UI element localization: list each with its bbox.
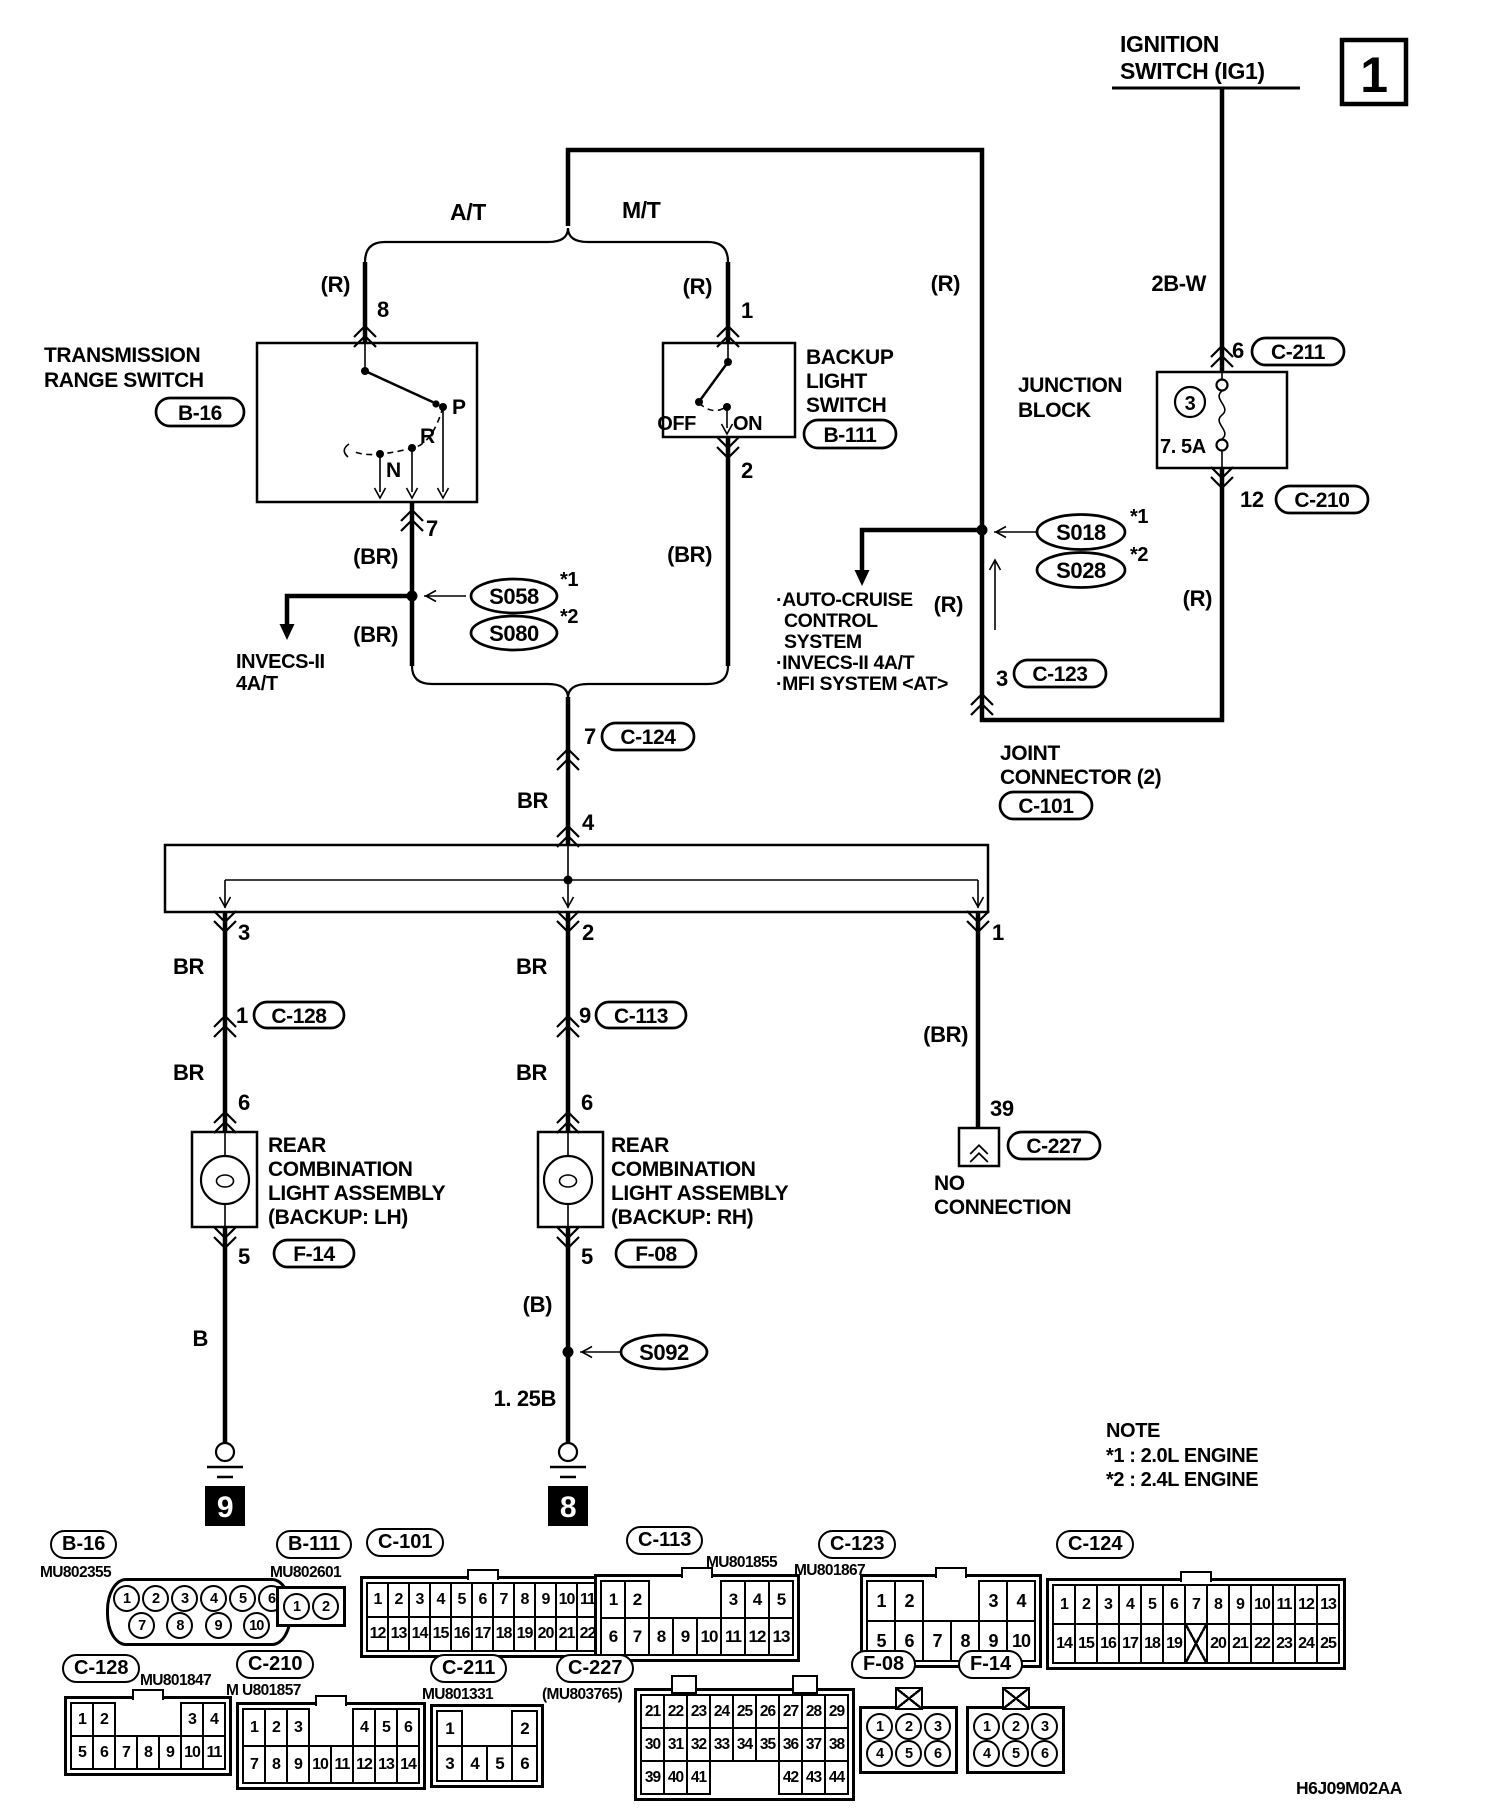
pin-4: 4 [202,1702,226,1737]
connector-pin-grid: 12345678910 [106,1578,292,1646]
pin-2: 2 [92,1702,116,1737]
trunk-pin7: 7 [584,724,596,749]
pin-13: 13 [387,1616,410,1652]
pin-4: 4 [429,1582,452,1618]
pin-10: 10 [555,1582,578,1618]
pin-2: 2 [624,1580,650,1619]
pin-row: 123 [865,1712,952,1741]
pin-5: 5 [70,1735,94,1770]
connector-part-number: MU801867 [794,1562,865,1580]
pin-23: 23 [1272,1623,1296,1664]
trs-pos-r: R [420,425,435,448]
connector-tag: C-128 [62,1654,140,1683]
pin-20: 20 [1206,1623,1230,1664]
diagram-code: H6J09M02AA [1296,1778,1402,1799]
pin-25: 25 [1316,1623,1340,1664]
lh-name-3: LIGHT ASSEMBLY [268,1182,446,1205]
pin-8: 8 [166,1612,193,1639]
ignition-label-1: IGNITION [1120,31,1219,57]
pin-6: 6 [92,1735,116,1770]
tag-c124-text: C-124 [620,726,676,749]
wire-r-right: (R) [1183,586,1212,611]
pin-row: 456 [972,1739,1059,1768]
pin-row: 78910 [112,1611,286,1640]
junction-block-label-1: JUNCTION [1018,374,1122,397]
pin-9: 9 [205,1612,232,1639]
pin-24: 24 [709,1694,734,1729]
connector-tag: C-210 [236,1650,314,1679]
trunk-wire-br: BR [517,788,548,813]
rear-light-rh-box [538,1132,603,1227]
pin-7: 7 [492,1582,515,1618]
pin-blank [114,1702,138,1737]
wire-r-feed-mid: (R) [934,592,963,617]
splice-dot-s018 [977,525,988,536]
pin-row: 141516171819202122232425 [1052,1623,1340,1664]
pin-11: 11 [202,1735,226,1770]
pin-1: 1 [113,1585,140,1612]
rh-name-1: REAR [611,1134,669,1157]
tag-b111-text: B-111 [824,424,878,447]
pin-row: 567891011 [70,1735,226,1770]
pin-blank [308,1708,332,1747]
schematic-canvas: IGNITION SWITCH (IG1) 1 2B-W JUNCTION BL… [0,0,1504,1528]
pin-1: 1 [283,1593,310,1620]
pin-3: 3 [1031,1713,1058,1740]
lh-name-4: (BACKUP: LH) [268,1206,408,1229]
fuse-number: 3 [1185,393,1196,415]
pin-5: 5 [1140,1584,1164,1625]
pin-12: 12 [352,1745,376,1784]
autocruise-line1: ·AUTO-CRUISE [776,589,913,611]
pin-16: 16 [1096,1623,1120,1664]
connector-pin-grid: 12345678910111213 [594,1574,800,1662]
pin-1: 1 [436,1710,463,1747]
pin-10: 10 [180,1735,204,1770]
pin-17: 17 [471,1616,494,1652]
pin-10: 10 [308,1745,332,1784]
splice-s018-text: S018 [1056,520,1106,545]
splice-s080-note: *2 [560,606,578,628]
splice-s092-text: S092 [639,1340,689,1365]
pin-row: 1234 [70,1702,226,1737]
jc-pin3: 3 [238,920,250,945]
pin-25: 25 [732,1694,757,1729]
pin-blank [461,1710,488,1747]
pin-row: 212223242526272829 [640,1694,849,1729]
merge-brace [412,666,728,698]
pin-row: 123 [972,1712,1059,1741]
pin-1: 1 [866,1580,896,1622]
ground-number-9: 9 [217,1491,233,1524]
pin-row: 303132333435363738 [640,1727,849,1762]
connector-pin-grid: 12345678910111213141516171819202122 [360,1576,605,1658]
pin-21: 21 [1228,1623,1252,1664]
bls-on-label: ON [733,413,762,435]
pin-5: 5 [486,1745,513,1782]
pin-3-c123: 3 [996,666,1008,691]
pin-row: 123456 [242,1708,420,1747]
pin-4: 4 [744,1580,770,1619]
pin-3: 3 [408,1582,431,1618]
pin-39: 39 [640,1760,665,1795]
pin-1: 1 [600,1580,626,1619]
bls-name-3: SWITCH [806,394,886,417]
pin-12-label: 12 [1240,487,1264,512]
fuse-rating: 7. 5A [1160,436,1206,458]
pin-22: 22 [1250,1623,1274,1664]
pin-2: 2 [511,1710,538,1747]
pin-11: 11 [330,1745,354,1784]
pin-row: 456 [865,1739,952,1768]
pin-2: 2 [894,1580,924,1622]
pin-30: 30 [640,1727,665,1762]
nc-wire-br: (BR) [923,1022,968,1047]
pin-37: 37 [801,1727,826,1762]
connector-part-number: (MU803765) [542,1686,622,1704]
pin-32: 32 [686,1727,711,1762]
pin-row: 12345 [600,1580,794,1619]
invecs-label-2: 4A/T [236,673,278,695]
joint-connector-box [165,845,988,912]
pin-4: 4 [866,1740,893,1767]
invecs-arrowhead [280,624,295,640]
pin-7: 7 [242,1745,266,1784]
splice-s028-text: S028 [1056,558,1106,583]
rh-name-3: LIGHT ASSEMBLY [611,1182,789,1205]
pin-6: 6 [924,1740,951,1767]
pin-row: 1234567891011 [366,1582,599,1618]
connector-tag: C-101 [366,1528,444,1557]
splice-dot-s058 [407,591,418,602]
tag-c101-text: C-101 [1018,795,1074,818]
at-pin8: 8 [377,297,389,322]
at-wire-r: (R) [321,272,350,297]
connector-part-number: M U801857 [226,1682,301,1700]
pin-5: 5 [374,1708,398,1747]
trs-pos-n: N [386,459,401,482]
mt-wire-br: (BR) [667,542,712,567]
jc-pin1: 1 [992,920,1004,945]
pin-1: 1 [973,1713,1000,1740]
connector-part-number: MU802601 [270,1564,341,1582]
pin-19: 19 [513,1616,536,1652]
mt-pin2: 2 [741,458,753,483]
trans-range-switch-box [257,343,477,502]
pin-14: 14 [396,1745,420,1784]
pin-blank [922,1580,952,1622]
pin-blank [672,1580,698,1619]
pin-1: 1 [242,1708,266,1747]
nc-symbol-chevron [970,1145,988,1162]
pin-blank [136,1702,160,1737]
pin-blank [709,1760,734,1795]
ground-number-8: 8 [560,1491,576,1524]
pin-9: 9 [158,1735,182,1770]
bls-name-1: BACKUP [806,346,894,369]
connector-tag: C-227 [556,1654,634,1683]
tag-c211-text: C-211 [1271,341,1326,364]
pin-2: 2 [264,1708,288,1747]
pin-5: 5 [450,1582,473,1618]
pin-15: 15 [1074,1623,1098,1664]
pin-4: 4 [461,1745,488,1782]
pin-8: 8 [513,1582,536,1618]
pin-3: 3 [924,1713,951,1740]
pin-13: 13 [1316,1584,1340,1625]
pin-29: 29 [824,1694,849,1729]
pin-9: 9 [534,1582,557,1618]
pin-blank [158,1702,182,1737]
ignition-label-2: SWITCH (IG1) [1120,58,1265,84]
lh-pin1: 1 [236,1003,248,1028]
pin-14: 14 [1052,1623,1076,1664]
lh-wire-br2: BR [173,1060,204,1085]
pin-1: 1 [366,1582,389,1618]
pin-row: 678910111213 [600,1617,794,1656]
pin-10: 10 [696,1617,722,1656]
jc-label-2: CONNECTOR (2) [1000,766,1161,789]
connector-pin-grid: 1234567891011121314 [236,1702,426,1790]
pin-2: 2 [312,1593,339,1620]
at-label: A/T [450,199,486,225]
pin-3: 3 [286,1708,310,1747]
tag-c128-text: C-128 [271,1005,327,1028]
lh-wire-br1: BR [173,954,204,979]
invecs-label-1: INVECS-II [236,651,325,673]
rh-pin6: 6 [581,1090,593,1115]
pin-blank [755,1760,780,1795]
pin-7: 7 [624,1617,650,1656]
pin-15: 15 [429,1616,452,1652]
wire-2bw-label: 2B-W [1151,271,1206,296]
pin-42: 42 [778,1760,803,1795]
pin-38: 38 [824,1727,849,1762]
pin-11: 11 [720,1617,746,1656]
pin-blocked [1184,1623,1208,1664]
pin-9: 9 [672,1617,698,1656]
connector-pin-grid: 1234567891011 [64,1696,232,1776]
pin-6: 6 [1031,1740,1058,1767]
at-wire-br2: (BR) [353,622,398,647]
connector-tag: C-211 [430,1654,507,1683]
pin-2: 2 [387,1582,410,1618]
rh-name-2: COMBINATION [611,1158,756,1181]
pin-8: 8 [264,1745,288,1784]
connector-tag: C-123 [818,1530,896,1559]
splice-s058-note: *1 [560,569,578,591]
pin-row: 1213141516171819202122 [366,1616,599,1652]
autocruise-arrowhead [855,570,870,586]
joint-connector-bus [220,845,984,908]
splice-s018-note: *1 [1130,506,1148,528]
pin-7: 7 [128,1612,155,1639]
connector-pin-grid: 123456 [966,1706,1065,1774]
rh-wire-125b: 1. 25B [494,1386,556,1411]
autocruise-line4: ·INVECS-II 4A/T [776,652,915,674]
connector-tag: C-124 [1056,1530,1134,1559]
tag-c210-text: C-210 [1294,489,1349,512]
nc-label-1: NO [934,1172,965,1195]
pin-blank [330,1708,354,1747]
connector-part-number: MU801847 [140,1672,211,1690]
rh-pin9: 9 [579,1003,591,1028]
connector-tag: C-113 [626,1526,703,1555]
nc-symbol-box [959,1128,999,1166]
connector-part-number: MU801331 [422,1686,493,1704]
splice-dot-s092 [563,1347,574,1358]
pin-5: 5 [229,1585,256,1612]
pin-34: 34 [732,1727,757,1762]
wiring-diagram-page: IGNITION SWITCH (IG1) 1 2B-W JUNCTION BL… [0,0,1504,1810]
pin-1: 1 [866,1713,893,1740]
pin-3: 3 [1096,1584,1120,1625]
pin-3: 3 [436,1745,463,1782]
mt-wire-r: (R) [683,274,712,299]
pin-3: 3 [978,1580,1008,1622]
pin-10: 10 [1250,1584,1274,1625]
connector-pin-grid: 12 [276,1586,346,1627]
pin-4: 4 [973,1740,1000,1767]
lh-name-1: REAR [268,1134,326,1157]
pin-26: 26 [755,1694,780,1729]
rh-wire-br2: BR [516,1060,547,1085]
pin-10: 10 [243,1612,270,1639]
pin-row: 12 [282,1592,340,1621]
mt-label: M/T [622,197,661,223]
pin-43: 43 [801,1760,826,1795]
at-pin7: 7 [426,516,438,541]
pin-5: 5 [768,1580,794,1619]
pin-blank [648,1580,674,1619]
pin-21: 21 [555,1616,578,1652]
pin-4: 4 [1118,1584,1142,1625]
rh-wire-b: (B) [523,1292,552,1317]
bls-off-label: OFF [657,413,696,435]
splice-s058-text: S058 [489,584,539,609]
pin-23: 23 [686,1694,711,1729]
pin-33: 33 [709,1727,734,1762]
tag-f08-text: F-08 [635,1243,677,1266]
trs-name-2: RANGE SWITCH [44,369,204,392]
pin-28: 28 [801,1694,826,1729]
pin-22: 22 [663,1694,688,1729]
pin-21: 21 [640,1694,665,1729]
pin-blank [950,1580,980,1622]
connector-tag: F-14 [958,1650,1023,1679]
pin-3: 3 [720,1580,746,1619]
junction-block-label-2: BLOCK [1018,399,1091,422]
split-brace [365,228,728,262]
bls-name-2: LIGHT [806,370,868,393]
pin-2: 2 [895,1713,922,1740]
pin-row: 123456 [112,1584,286,1613]
pin-14: 14 [408,1616,431,1652]
connector-tag: F-08 [851,1650,916,1679]
pin-19: 19 [1162,1623,1186,1664]
pin-blank [486,1710,513,1747]
pin-8: 8 [1206,1584,1230,1625]
pin-blank [732,1760,757,1795]
pin-18: 18 [1140,1623,1164,1664]
pin-7: 7 [1184,1584,1208,1625]
tag-c123-text: C-123 [1032,663,1087,686]
bulb-lh [201,1132,249,1227]
pin-6: 6 [396,1708,420,1747]
nc-label-2: CONNECTION [934,1196,1071,1219]
pin-20: 20 [534,1616,557,1652]
tag-c227-text: C-227 [1026,1135,1081,1158]
pin-5: 5 [895,1740,922,1767]
pin-18: 18 [492,1616,515,1652]
pin-9: 9 [286,1745,310,1784]
pin-8: 8 [136,1735,160,1770]
pin-7: 7 [922,1620,952,1662]
pin-6: 6 [471,1582,494,1618]
pin-6-label: 6 [1232,338,1244,363]
pin-17: 17 [1118,1623,1142,1664]
wire-r-feed-top: (R) [931,271,960,296]
note-line-1: *1 : 2.0L ENGINE [1106,1445,1258,1467]
fuse-symbol [1217,372,1228,468]
pin-2: 2 [1074,1584,1098,1625]
pin-9: 9 [1228,1584,1252,1625]
splice-s028-note: *2 [1130,544,1148,566]
autocruise-line3: SYSTEM [784,631,862,653]
splice-s080-text: S080 [489,621,539,646]
pin-2: 2 [1002,1713,1029,1740]
connector-tag: B-111 [276,1530,352,1559]
pin-4: 4 [200,1585,227,1612]
pin-row: 3456 [436,1745,538,1782]
pin-8: 8 [648,1617,674,1656]
lh-wire-b: B [193,1326,209,1351]
pin-2: 2 [142,1585,169,1612]
lh-pin6: 6 [238,1090,250,1115]
bulb-rh [544,1132,592,1227]
at-wire-br1: (BR) [353,544,398,569]
pin-24: 24 [1294,1623,1318,1664]
rh-wire-br1: BR [516,954,547,979]
mt-pin1: 1 [741,298,753,323]
pin-27: 27 [778,1694,803,1729]
pin-11: 11 [1272,1584,1296,1625]
pin-row: 12345678910111213 [1052,1584,1340,1625]
trunk-pin4: 4 [582,810,595,835]
pin-1: 1 [70,1702,94,1737]
note-title: NOTE [1106,1420,1160,1442]
pin-5: 5 [1002,1740,1029,1767]
rh-name-4: (BACKUP: RH) [611,1206,753,1229]
pin-35: 35 [755,1727,780,1762]
trs-pos-p: P [452,396,466,419]
tag-b16-text: B-16 [178,402,222,425]
pin-6: 6 [511,1745,538,1782]
jc-label-1: JOINT [1000,742,1060,765]
lh-name-2: COMBINATION [268,1158,413,1181]
pin-13: 13 [768,1617,794,1656]
connector-pin-grid: 2122232425262728293031323334353637383940… [634,1688,855,1801]
tag-c113-text: C-113 [614,1005,668,1028]
pin-row: 12 [436,1710,538,1747]
pin-12: 12 [366,1616,389,1652]
pin-36: 36 [778,1727,803,1762]
pin-row: 394041424344 [640,1760,849,1795]
rh-pin5: 5 [581,1244,593,1269]
connector-part-number: MU802355 [40,1564,111,1582]
pin-3: 3 [180,1702,204,1737]
bls-internals [695,343,733,434]
